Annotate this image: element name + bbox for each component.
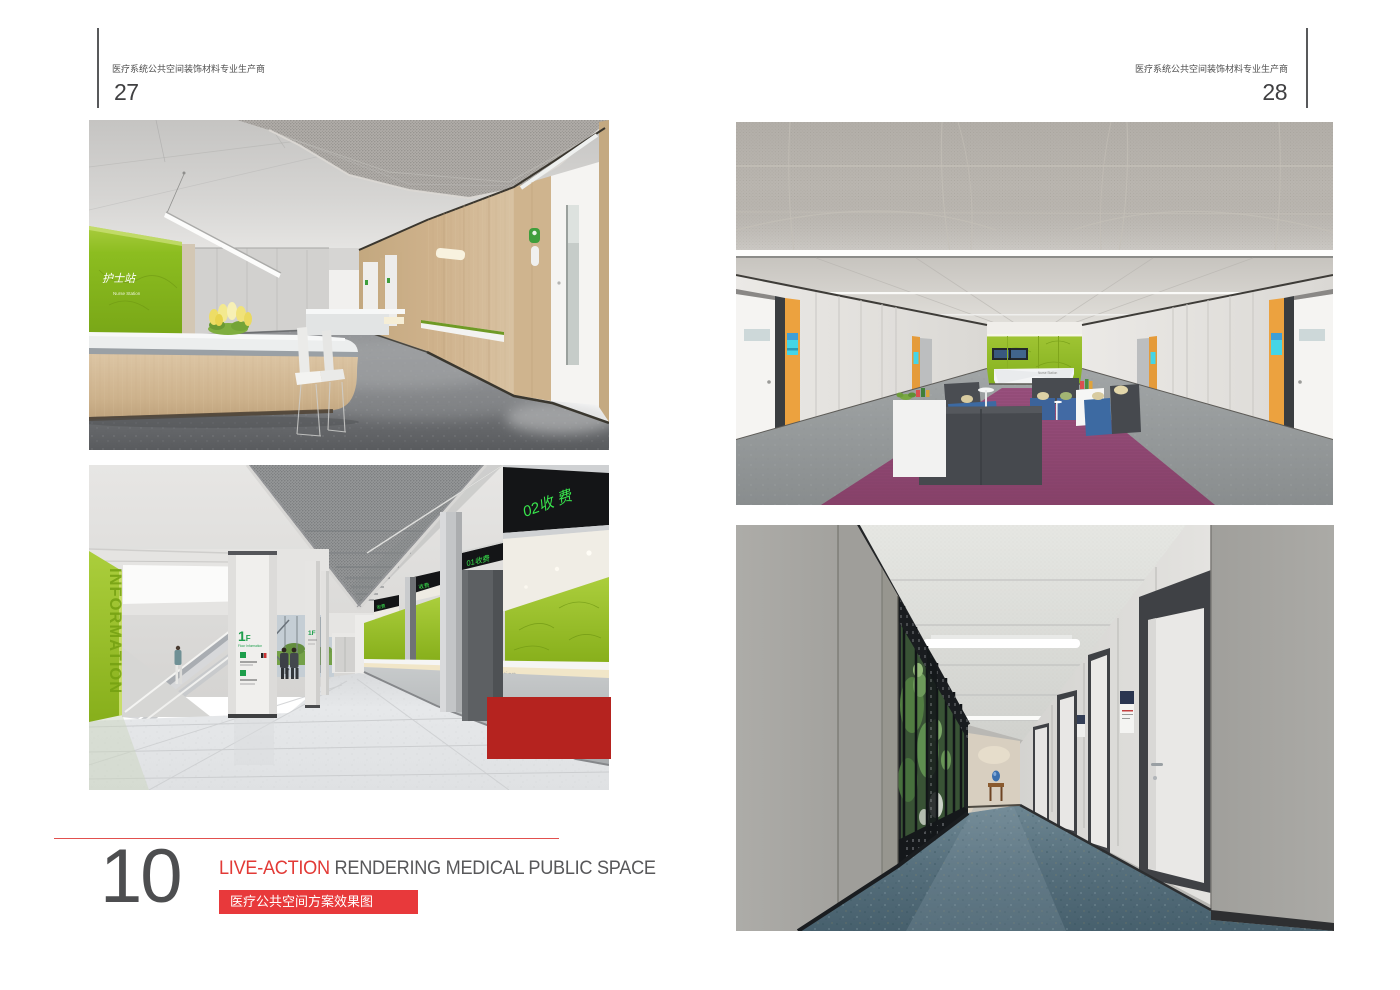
svg-text:Nurse Station: Nurse Station [113, 291, 141, 296]
svg-text:INFORMATION: INFORMATION [106, 568, 124, 694]
svg-text:护士站: 护士站 [102, 272, 137, 285]
svg-text:1F: 1F [308, 630, 316, 637]
svg-text:Floor Information: Floor Information [238, 644, 262, 648]
svg-text:Nurse Station: Nurse Station [1038, 371, 1058, 375]
